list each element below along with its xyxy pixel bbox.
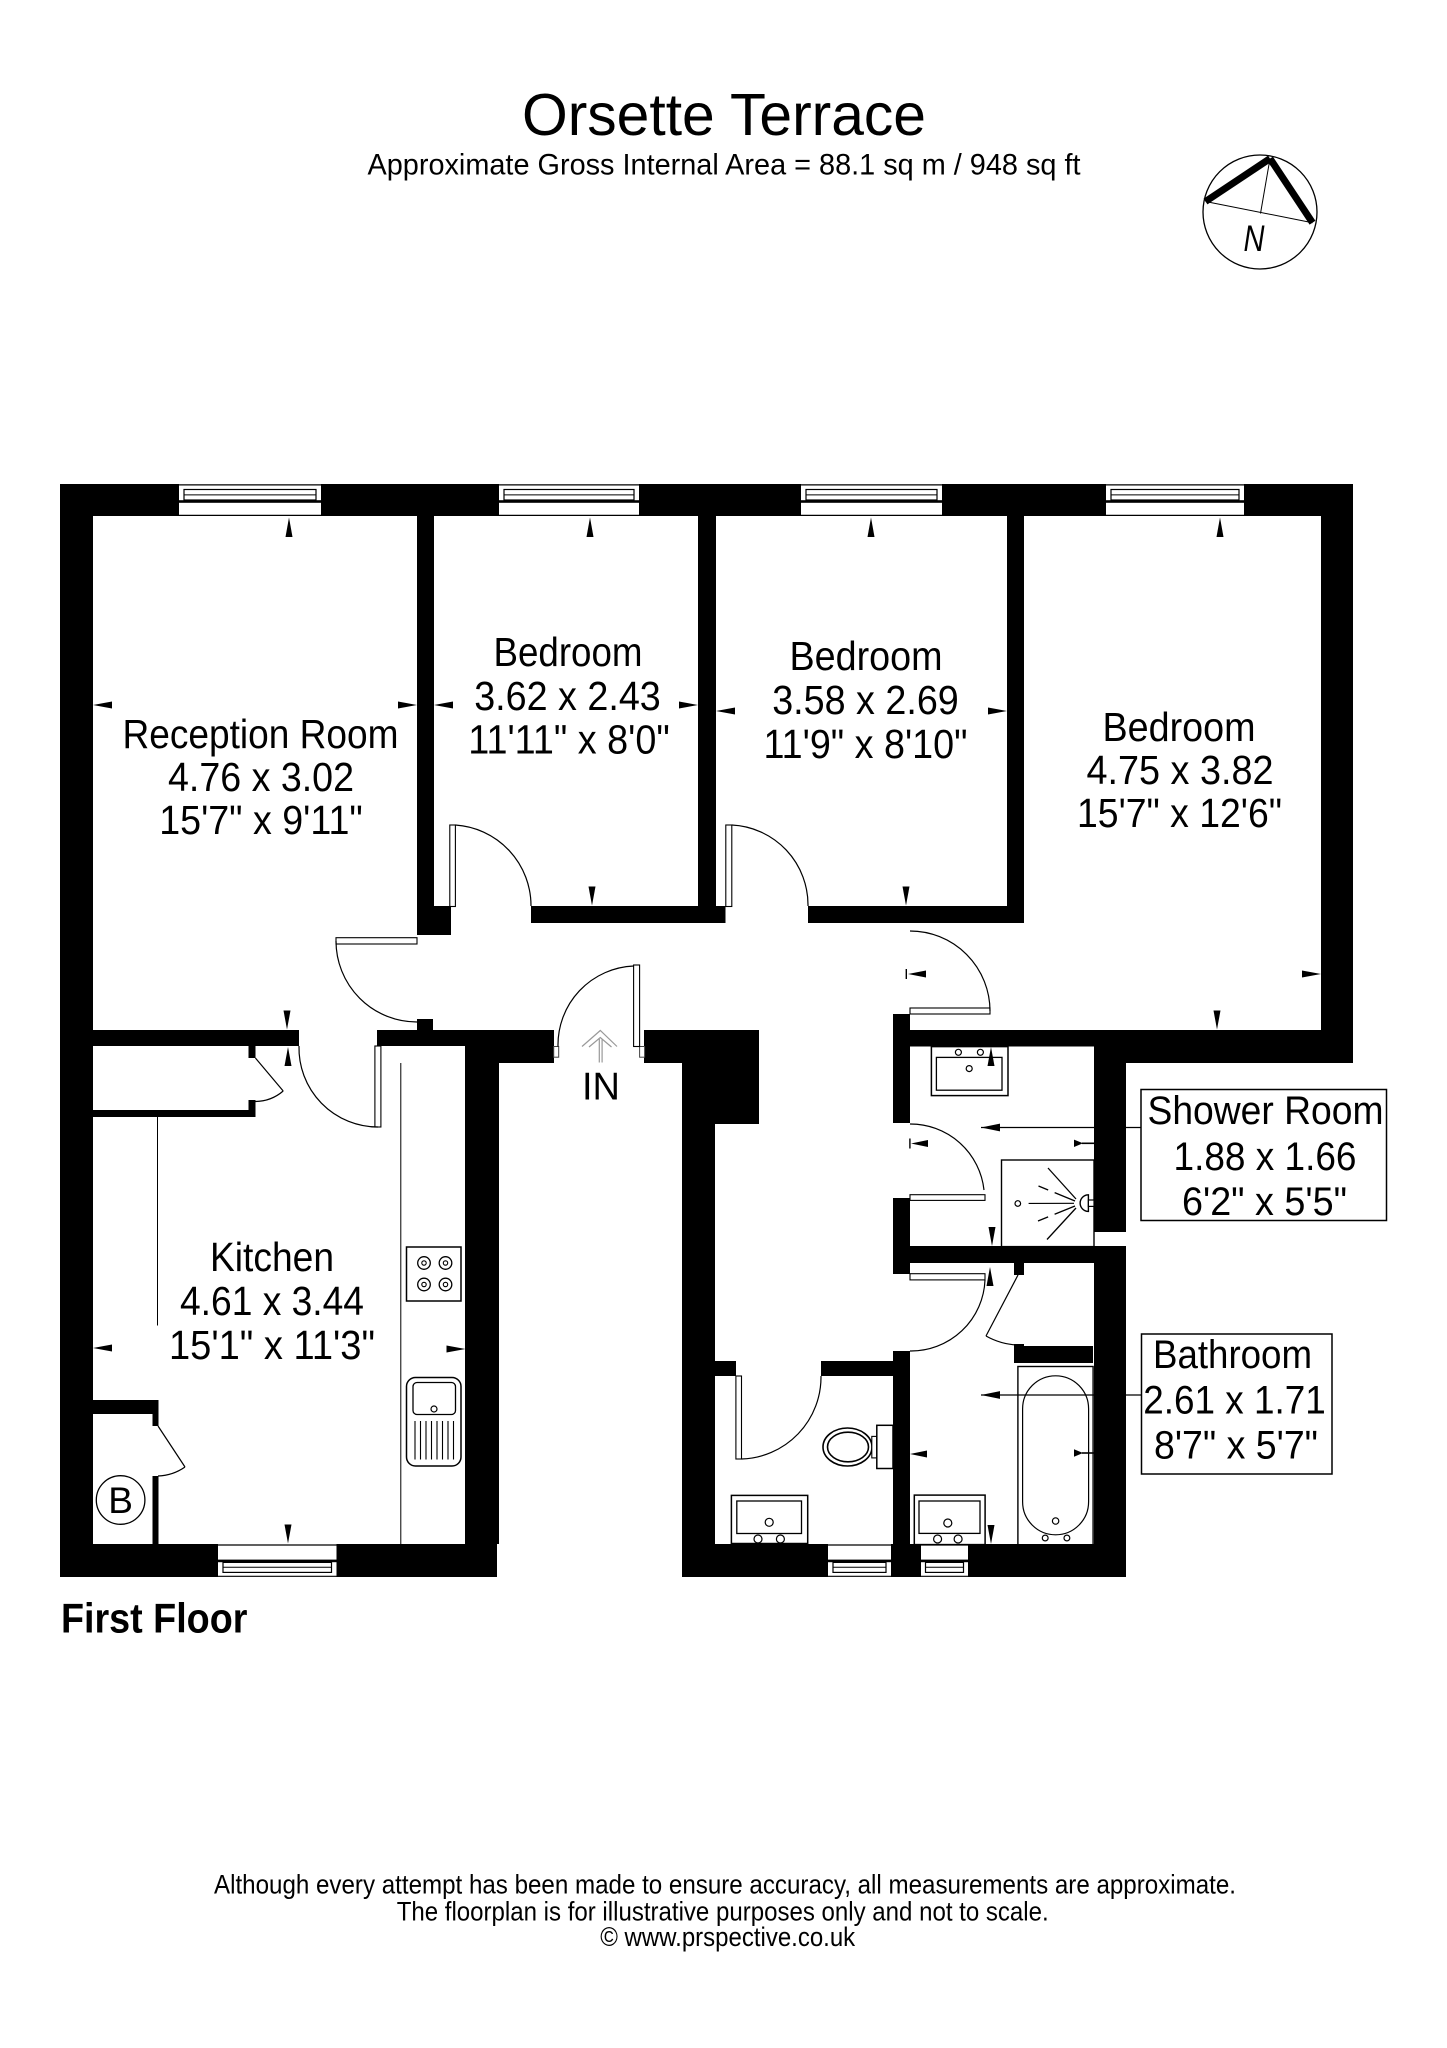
svg-text:Bedroom: Bedroom: [790, 633, 943, 679]
svg-text:Bedroom: Bedroom: [494, 629, 643, 675]
svg-text:11'9" x 8'10": 11'9" x 8'10": [764, 721, 968, 767]
svg-text:3.58 x 2.69: 3.58 x 2.69: [772, 677, 959, 723]
svg-text:Although every attempt has bee: Although every attempt has been made to …: [214, 1869, 1236, 1899]
svg-text:Bedroom: Bedroom: [1103, 704, 1256, 750]
svg-text:4.76 x 3.02: 4.76 x 3.02: [168, 754, 354, 800]
svg-text:3.62 x 2.43: 3.62 x 2.43: [474, 673, 661, 719]
svg-text:Approximate Gross Internal Are: Approximate Gross Internal Area = 88.1 s…: [368, 149, 1082, 182]
svg-text:15'1" x 11'3": 15'1" x 11'3": [169, 1322, 375, 1368]
svg-text:1.88 x 1.66: 1.88 x 1.66: [1174, 1135, 1357, 1179]
svg-text:Reception Room: Reception Room: [123, 711, 399, 757]
svg-text:N: N: [1244, 218, 1265, 259]
svg-text:Shower Room: Shower Room: [1148, 1089, 1384, 1133]
svg-text:15'7" x 9'11": 15'7" x 9'11": [159, 797, 363, 843]
svg-text:IN: IN: [582, 1066, 620, 1109]
svg-text:4.61 x 3.44: 4.61 x 3.44: [180, 1278, 364, 1324]
svg-text:First Floor: First Floor: [61, 1595, 247, 1642]
svg-text:6'2" x 5'5": 6'2" x 5'5": [1182, 1180, 1347, 1224]
svg-text:11'11" x 8'0": 11'11" x 8'0": [468, 717, 670, 763]
svg-text:Kitchen: Kitchen: [210, 1234, 334, 1280]
svg-text:© www.prspective.co.uk: © www.prspective.co.uk: [600, 1922, 856, 1952]
svg-text:8'7" x 5'7": 8'7" x 5'7": [1154, 1424, 1318, 1468]
svg-text:Bathroom: Bathroom: [1153, 1333, 1312, 1377]
svg-text:B: B: [108, 1480, 133, 1521]
svg-text:15'7" x 12'6": 15'7" x 12'6": [1077, 790, 1282, 836]
svg-text:Orsette Terrace: Orsette Terrace: [522, 82, 926, 148]
svg-text:2.61 x 1.71: 2.61 x 1.71: [1143, 1379, 1326, 1423]
svg-text:4.75 x 3.82: 4.75 x 3.82: [1087, 747, 1274, 793]
